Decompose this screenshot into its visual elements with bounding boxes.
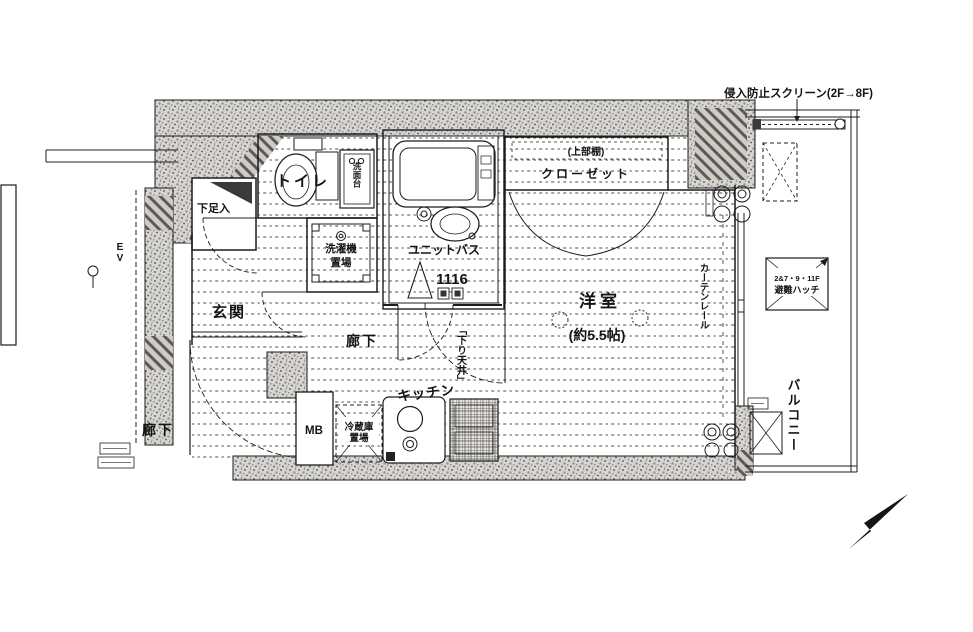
fridge-label-2: 置場 xyxy=(349,432,369,444)
wall-top-right-hatch xyxy=(695,108,747,180)
wall-ev-hatch-2 xyxy=(145,336,173,370)
toilet-label: トイレ xyxy=(276,173,330,190)
lowered-ceiling-label: 「下り天井」 xyxy=(455,325,467,385)
wall-mb-corner xyxy=(267,352,307,398)
washer-label-1: 洗濯機 xyxy=(325,242,357,255)
bathtub xyxy=(393,141,495,207)
upper-shelf-label: (上部棚) xyxy=(568,145,605,158)
washer-label-2: 置場 xyxy=(331,256,352,269)
meter-box-label: MB xyxy=(305,425,323,437)
unit-bath-size: 1116 xyxy=(436,271,468,288)
hall-outer-label: 廊下 xyxy=(142,422,174,438)
bath-sink xyxy=(431,207,479,241)
kitchen-stove xyxy=(450,399,498,461)
balcony-label: バルコニー xyxy=(786,378,801,453)
closet-label: クローゼット xyxy=(541,166,631,181)
unit-bath-label: ユニットバス xyxy=(408,243,480,257)
kitchen-zone xyxy=(296,392,498,465)
western-room-label: 洋室 xyxy=(579,291,621,311)
vanity-label: 洗面台 xyxy=(352,161,362,188)
wall-ev-hatch-1 xyxy=(145,196,173,230)
hatch-floors-label: 2&7・9・11F xyxy=(774,274,820,283)
fridge-label-1: 冷蔵庫 xyxy=(345,421,374,433)
intrusion-screen-label: 侵入防止スクリーン(2F→8F) xyxy=(723,86,873,100)
elevator-label: EV xyxy=(115,242,126,264)
floor-plan-drawing: 侵入防止スクリーン(2F→8F) トイレ 洗濯機 置場 ユニットバス 1116 … xyxy=(0,0,973,632)
entrance-label: 玄関 xyxy=(212,303,246,321)
hall-inner-label: 廊下 xyxy=(346,333,378,349)
curtain-rail-label: カーテンレール xyxy=(698,263,710,330)
shoe-cabinet-label: 下足入 xyxy=(197,202,230,215)
floor-plan-page: { "plan": { "annotations": { "intrusion_… xyxy=(0,0,973,632)
hatch-label: 避難ハッチ xyxy=(774,284,819,295)
western-room-size: (約5.5帖) xyxy=(569,327,626,343)
north-arrow-icon xyxy=(849,494,908,549)
